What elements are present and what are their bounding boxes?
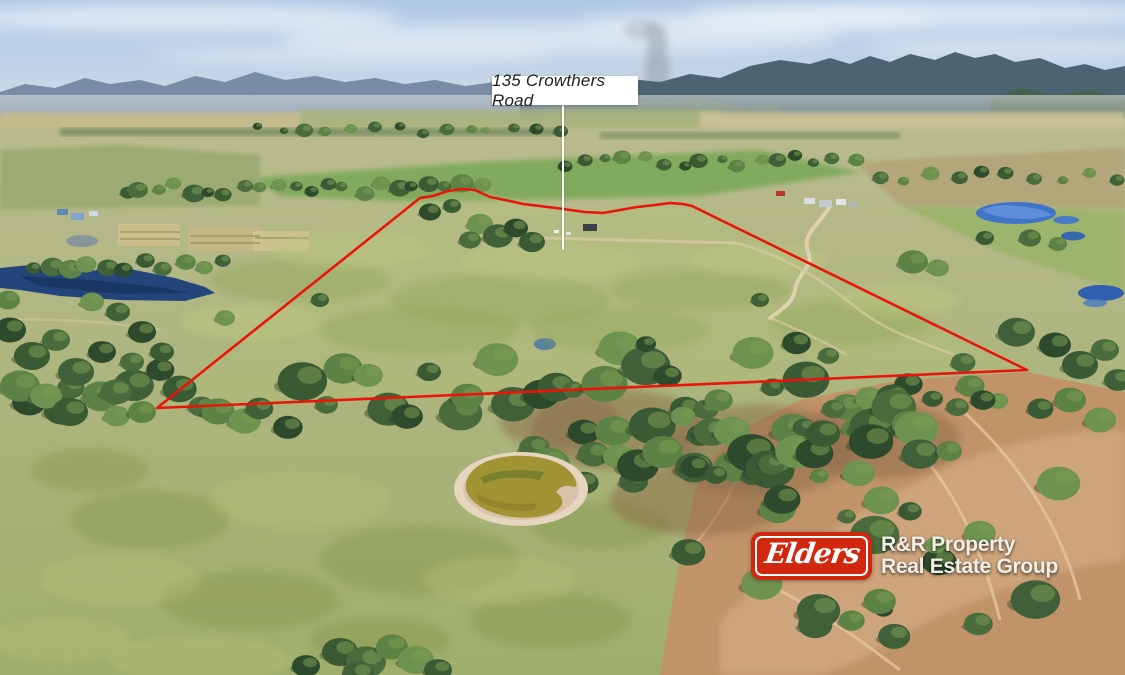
elders-logo-text: Elders [763,540,861,568]
agency-line2: Real Estate Group [881,556,1058,578]
elders-logo: Elders [751,532,872,580]
agency-name: R&R Property Real Estate Group [881,532,1058,578]
agency-line1: R&R Property [881,534,1058,556]
address-label: 135 Crowthers Road [492,76,638,105]
agency-watermark: Elders R&R Property Real Estate Group [751,532,1058,580]
label-leader-line [562,105,564,250]
foreground-pond [454,452,588,526]
listing-photo: 135 Crowthers Road Elders R&R Property R… [0,0,1125,675]
elders-logo-border: Elders [755,536,868,576]
